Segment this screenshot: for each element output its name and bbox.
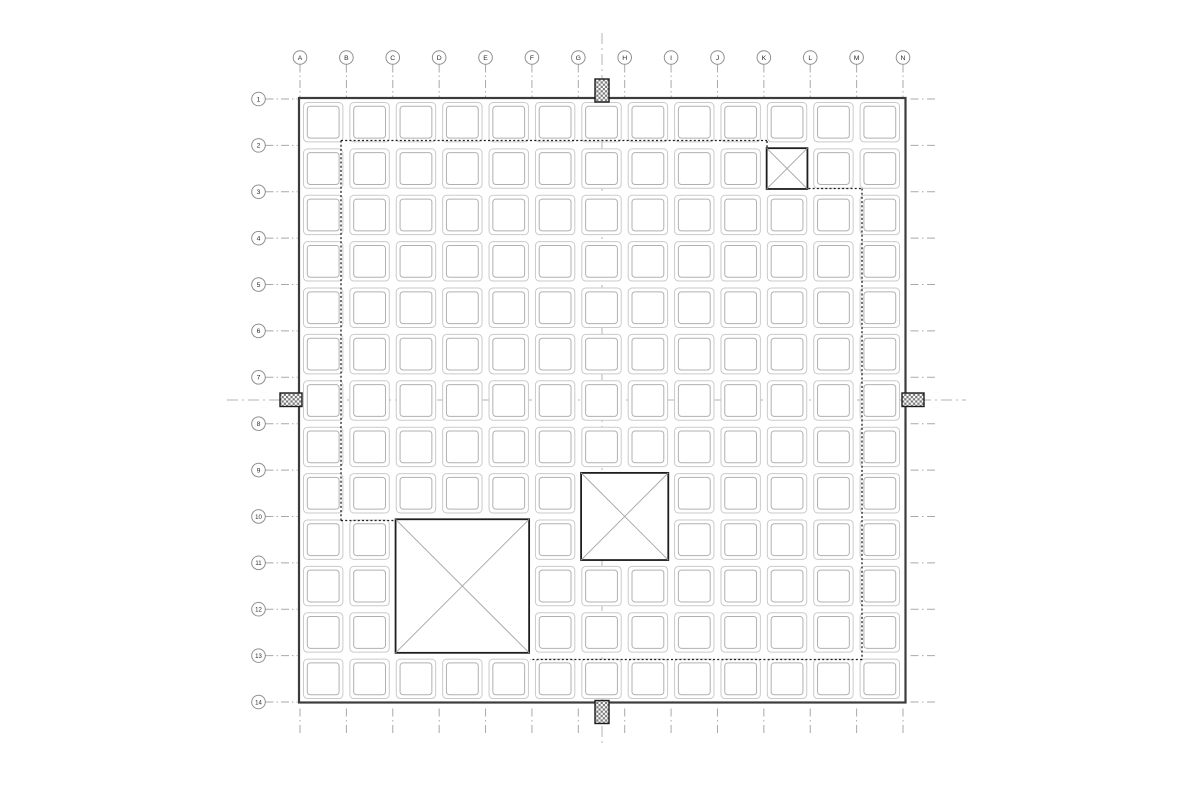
waffle-cell bbox=[860, 474, 899, 513]
waffle-cell bbox=[535, 659, 574, 698]
waffle-cell-outer-border bbox=[489, 334, 528, 373]
waffle-cell bbox=[860, 195, 899, 234]
slab-opening-small bbox=[767, 148, 808, 189]
waffle-cell-outer-border bbox=[767, 288, 806, 327]
waffle-cell bbox=[860, 242, 899, 281]
waffle-cell-outer-border bbox=[396, 288, 435, 327]
section-marker-left bbox=[280, 393, 302, 407]
waffle-cell-outer-border bbox=[396, 659, 435, 698]
grid-bubble-label: D bbox=[437, 55, 442, 62]
grid-bubble-row-14: 14 bbox=[252, 695, 266, 709]
waffle-cell bbox=[396, 195, 435, 234]
waffle-cell-outer-border bbox=[860, 103, 899, 142]
waffle-cell-outer-border bbox=[767, 427, 806, 466]
grid-bubble-label: 4 bbox=[257, 235, 261, 242]
waffle-cell bbox=[628, 381, 667, 420]
waffle-cell-outer-border bbox=[814, 103, 853, 142]
waffle-cell bbox=[814, 427, 853, 466]
waffle-cell-outer-border bbox=[535, 659, 574, 698]
waffle-cell-outer-border bbox=[675, 288, 714, 327]
waffle-cell bbox=[304, 613, 343, 652]
waffle-cell bbox=[582, 334, 621, 373]
grid-bubble-label: I bbox=[670, 55, 672, 62]
grid-bubble-row-4: 4 bbox=[252, 231, 266, 245]
waffle-cell-outer-border bbox=[814, 613, 853, 652]
grid-bubble-label: 5 bbox=[257, 282, 261, 289]
waffle-cell bbox=[767, 474, 806, 513]
waffle-cell-outer-border bbox=[675, 195, 714, 234]
waffle-cell bbox=[304, 195, 343, 234]
waffle-cell-outer-border bbox=[304, 659, 343, 698]
waffle-cell bbox=[860, 381, 899, 420]
waffle-cell bbox=[396, 381, 435, 420]
waffle-cell bbox=[582, 381, 621, 420]
waffle-cell-outer-border bbox=[304, 520, 343, 559]
waffle-cell-outer-border bbox=[675, 520, 714, 559]
waffle-cell bbox=[350, 659, 389, 698]
grid-bubble-row-2: 2 bbox=[252, 139, 266, 153]
waffle-cell bbox=[860, 566, 899, 605]
waffle-cell bbox=[304, 334, 343, 373]
waffle-cell bbox=[350, 334, 389, 373]
section-marker-right bbox=[902, 393, 924, 407]
waffle-cell bbox=[443, 149, 482, 188]
waffle-cell bbox=[814, 103, 853, 142]
waffle-cell-outer-border bbox=[350, 149, 389, 188]
waffle-cell bbox=[443, 103, 482, 142]
waffle-cell-outer-border bbox=[721, 103, 760, 142]
waffle-cell bbox=[489, 427, 528, 466]
waffle-cell-outer-border bbox=[396, 242, 435, 281]
waffle-cell bbox=[628, 427, 667, 466]
waffle-cell bbox=[443, 659, 482, 698]
waffle-cell-outer-border bbox=[396, 381, 435, 420]
waffle-cell bbox=[814, 520, 853, 559]
waffle-cell bbox=[814, 474, 853, 513]
waffle-cell bbox=[350, 288, 389, 327]
waffle-cell bbox=[489, 334, 528, 373]
grid-bubble-label: 9 bbox=[257, 467, 261, 474]
waffle-cell bbox=[814, 242, 853, 281]
waffle-cell-outer-border bbox=[767, 242, 806, 281]
grid-bubble-label: 7 bbox=[257, 375, 261, 382]
waffle-cell bbox=[396, 103, 435, 142]
grid-bubble-label: C bbox=[390, 55, 395, 62]
waffle-cell-outer-border bbox=[721, 334, 760, 373]
waffle-cell bbox=[304, 288, 343, 327]
waffle-cell bbox=[535, 613, 574, 652]
waffle-cell bbox=[628, 242, 667, 281]
waffle-cell-outer-border bbox=[675, 242, 714, 281]
waffle-cell-outer-border bbox=[721, 520, 760, 559]
grid-bubble-column-J: J bbox=[711, 51, 725, 65]
grid-bubble-row-11: 11 bbox=[252, 556, 266, 570]
grid-bubble-label: M bbox=[854, 55, 860, 62]
waffle-cell-outer-border bbox=[396, 427, 435, 466]
waffle-cell bbox=[582, 103, 621, 142]
waffle-cell-outer-border bbox=[814, 520, 853, 559]
waffle-cell-outer-border bbox=[535, 103, 574, 142]
grid-bubble-label: 6 bbox=[257, 328, 261, 335]
waffle-cell bbox=[860, 520, 899, 559]
waffle-cell bbox=[443, 288, 482, 327]
grid-bubble-row-10: 10 bbox=[252, 510, 266, 524]
waffle-cell bbox=[814, 381, 853, 420]
waffle-cell-outer-border bbox=[304, 334, 343, 373]
waffle-cell-outer-border bbox=[628, 195, 667, 234]
waffle-cell bbox=[675, 288, 714, 327]
waffle-cell bbox=[814, 195, 853, 234]
waffle-cell bbox=[304, 566, 343, 605]
waffle-cell-outer-border bbox=[304, 195, 343, 234]
waffle-cell bbox=[721, 334, 760, 373]
grid-bubble-column-G: G bbox=[572, 51, 586, 65]
waffle-cell-outer-border bbox=[535, 334, 574, 373]
waffle-cell-outer-border bbox=[535, 381, 574, 420]
grid-bubble-label: 10 bbox=[255, 515, 262, 521]
grid-bubble-label: 12 bbox=[255, 608, 262, 614]
waffle-cell bbox=[721, 427, 760, 466]
waffle-cell-outer-border bbox=[860, 520, 899, 559]
grid-bubble-label: L bbox=[808, 55, 812, 62]
waffle-cell-outer-border bbox=[350, 427, 389, 466]
waffle-cell bbox=[443, 195, 482, 234]
waffle-cell-outer-border bbox=[582, 659, 621, 698]
waffle-cell-outer-border bbox=[535, 566, 574, 605]
waffle-cell bbox=[350, 613, 389, 652]
grid-bubble-column-F: F bbox=[525, 51, 539, 65]
waffle-cell-outer-border bbox=[489, 242, 528, 281]
waffle-cell bbox=[860, 613, 899, 652]
waffle-cell bbox=[628, 566, 667, 605]
waffle-cell bbox=[582, 613, 621, 652]
waffle-cell-outer-border bbox=[860, 427, 899, 466]
waffle-cell bbox=[350, 103, 389, 142]
grid-bubble-label: B bbox=[344, 55, 349, 62]
waffle-cell bbox=[535, 288, 574, 327]
grid-bubble-label: N bbox=[901, 55, 906, 62]
waffle-cell-outer-border bbox=[396, 103, 435, 142]
waffle-cell bbox=[489, 195, 528, 234]
grid-bubble-label: 14 bbox=[255, 700, 262, 706]
waffle-cell-outer-border bbox=[489, 195, 528, 234]
waffle-cell bbox=[675, 149, 714, 188]
waffle-cell bbox=[489, 659, 528, 698]
grid-bubble-row-7: 7 bbox=[252, 371, 266, 385]
waffle-cell-outer-border bbox=[767, 659, 806, 698]
waffle-cell bbox=[675, 334, 714, 373]
waffle-cell bbox=[675, 103, 714, 142]
waffle-cell-outer-border bbox=[860, 381, 899, 420]
waffle-cell bbox=[443, 242, 482, 281]
waffle-cell-outer-border bbox=[443, 474, 482, 513]
waffle-cell bbox=[535, 474, 574, 513]
waffle-cell bbox=[675, 195, 714, 234]
waffle-cell bbox=[350, 242, 389, 281]
waffle-cell bbox=[535, 195, 574, 234]
waffle-cell-outer-border bbox=[350, 195, 389, 234]
waffle-cell-outer-border bbox=[582, 334, 621, 373]
waffle-cell-outer-border bbox=[304, 242, 343, 281]
waffle-cell-outer-border bbox=[396, 195, 435, 234]
waffle-cell-outer-border bbox=[628, 613, 667, 652]
waffle-cell-outer-border bbox=[860, 195, 899, 234]
waffle-cell-outer-border bbox=[675, 149, 714, 188]
grid-bubble-row-3: 3 bbox=[252, 185, 266, 199]
waffle-cell bbox=[535, 520, 574, 559]
grid-bubble-label: K bbox=[762, 55, 767, 62]
grid-bubble-column-I: I bbox=[664, 51, 678, 65]
waffle-cell-outer-border bbox=[443, 288, 482, 327]
waffle-cell-outer-border bbox=[443, 103, 482, 142]
waffle-cell bbox=[304, 659, 343, 698]
waffle-cell bbox=[767, 613, 806, 652]
waffle-cell-outer-border bbox=[675, 659, 714, 698]
waffle-cell-outer-border bbox=[535, 195, 574, 234]
grid-bubble-row-6: 6 bbox=[252, 324, 266, 338]
waffle-cell-outer-border bbox=[535, 242, 574, 281]
waffle-cell-outer-border bbox=[814, 149, 853, 188]
waffle-cell bbox=[675, 381, 714, 420]
grid-bubble-label: F bbox=[530, 55, 534, 62]
waffle-cell bbox=[721, 613, 760, 652]
waffle-cell-outer-border bbox=[304, 103, 343, 142]
grid-bubble-label: A bbox=[298, 55, 303, 62]
waffle-cell-outer-border bbox=[675, 613, 714, 652]
waffle-cell-outer-border bbox=[443, 242, 482, 281]
waffle-cell bbox=[582, 288, 621, 327]
waffle-cell bbox=[628, 288, 667, 327]
waffle-cell-outer-border bbox=[814, 242, 853, 281]
waffle-cell-outer-border bbox=[721, 242, 760, 281]
waffle-cell bbox=[396, 149, 435, 188]
waffle-cell-outer-border bbox=[489, 474, 528, 513]
waffle-cell-outer-border bbox=[535, 288, 574, 327]
waffle-cell bbox=[675, 659, 714, 698]
waffle-cell bbox=[489, 103, 528, 142]
waffle-cell-outer-border bbox=[350, 381, 389, 420]
waffle-cell-outer-border bbox=[721, 288, 760, 327]
waffle-cell bbox=[767, 659, 806, 698]
waffle-cell-outer-border bbox=[443, 195, 482, 234]
waffle-cell-outer-border bbox=[767, 381, 806, 420]
waffle-cell bbox=[304, 427, 343, 466]
waffle-cell bbox=[675, 427, 714, 466]
waffle-cell bbox=[675, 613, 714, 652]
waffle-cell-outer-border bbox=[535, 613, 574, 652]
waffle-cell-outer-border bbox=[582, 566, 621, 605]
slab-opening-medium bbox=[581, 473, 668, 560]
waffle-cell bbox=[304, 149, 343, 188]
waffle-cell bbox=[489, 242, 528, 281]
waffle-cell-outer-border bbox=[814, 288, 853, 327]
waffle-cell-outer-border bbox=[304, 427, 343, 466]
waffle-cell bbox=[860, 288, 899, 327]
waffle-cell-outer-border bbox=[767, 520, 806, 559]
waffle-cell-outer-border bbox=[814, 195, 853, 234]
waffle-cell bbox=[304, 474, 343, 513]
waffle-cell bbox=[304, 242, 343, 281]
grid-bubble-column-N: N bbox=[896, 51, 910, 65]
waffle-cell-outer-border bbox=[582, 427, 621, 466]
waffle-cell bbox=[767, 566, 806, 605]
waffle-cell-outer-border bbox=[721, 659, 760, 698]
waffle-cell-outer-border bbox=[350, 288, 389, 327]
waffle-cell bbox=[767, 520, 806, 559]
waffle-cell bbox=[535, 566, 574, 605]
waffle-cell bbox=[582, 149, 621, 188]
waffle-cell bbox=[350, 381, 389, 420]
grid-bubble-label: 13 bbox=[255, 654, 262, 660]
waffle-cell-outer-border bbox=[860, 149, 899, 188]
waffle-cell bbox=[489, 381, 528, 420]
waffle-cell bbox=[628, 613, 667, 652]
grid-bubble-label: J bbox=[716, 55, 719, 62]
waffle-cell-outer-border bbox=[535, 149, 574, 188]
waffle-cell bbox=[721, 103, 760, 142]
waffle-cell bbox=[721, 474, 760, 513]
waffle-cell bbox=[628, 659, 667, 698]
waffle-slab-plan: ABCDEFGHIJKLMN1234567891011121314 bbox=[0, 0, 1200, 800]
waffle-cell-outer-border bbox=[860, 334, 899, 373]
drawing-canvas: ABCDEFGHIJKLMN1234567891011121314 bbox=[0, 0, 1200, 800]
grid-bubble-row-12: 12 bbox=[252, 602, 266, 616]
grid-bubble-label: 1 bbox=[257, 96, 261, 103]
waffle-cell-outer-border bbox=[350, 520, 389, 559]
waffle-cell bbox=[675, 474, 714, 513]
grid-bubble-label: 11 bbox=[255, 561, 262, 567]
waffle-cell bbox=[767, 242, 806, 281]
waffle-cell-outer-border bbox=[628, 427, 667, 466]
waffle-cell-outer-border bbox=[675, 103, 714, 142]
waffle-cell bbox=[767, 381, 806, 420]
grid-bubble-row-8: 8 bbox=[252, 417, 266, 431]
waffle-cell bbox=[628, 334, 667, 373]
waffle-cell-outer-border bbox=[767, 103, 806, 142]
waffle-cell-outer-border bbox=[304, 613, 343, 652]
waffle-cell-outer-border bbox=[443, 427, 482, 466]
waffle-cell-outer-border bbox=[489, 427, 528, 466]
waffle-cell-outer-border bbox=[814, 474, 853, 513]
waffle-cell-outer-border bbox=[721, 149, 760, 188]
waffle-cell-outer-border bbox=[304, 566, 343, 605]
waffle-cell-outer-border bbox=[628, 659, 667, 698]
waffle-cell-outer-border bbox=[767, 566, 806, 605]
waffle-cell-outer-border bbox=[304, 474, 343, 513]
waffle-cell bbox=[350, 149, 389, 188]
waffle-cell bbox=[582, 566, 621, 605]
grid-bubble-column-K: K bbox=[757, 51, 771, 65]
waffle-cell bbox=[767, 195, 806, 234]
waffle-cell bbox=[304, 520, 343, 559]
waffle-cell-outer-border bbox=[721, 474, 760, 513]
waffle-cell-outer-border bbox=[721, 613, 760, 652]
waffle-cell-outer-border bbox=[860, 474, 899, 513]
waffle-cell bbox=[721, 659, 760, 698]
waffle-cell-outer-border bbox=[304, 381, 343, 420]
waffle-cell bbox=[582, 659, 621, 698]
grid-bubble-label: 3 bbox=[257, 189, 261, 196]
waffle-cell bbox=[814, 613, 853, 652]
waffle-cell bbox=[860, 149, 899, 188]
waffle-cell bbox=[860, 427, 899, 466]
section-marker-top bbox=[595, 79, 609, 102]
waffle-cell bbox=[814, 566, 853, 605]
waffle-cell bbox=[304, 103, 343, 142]
waffle-cell-outer-border bbox=[628, 566, 667, 605]
waffle-cell-outer-border bbox=[860, 288, 899, 327]
waffle-cell bbox=[814, 659, 853, 698]
waffle-cell bbox=[860, 659, 899, 698]
waffle-cell bbox=[350, 566, 389, 605]
waffle-cell-outer-border bbox=[535, 520, 574, 559]
waffle-cell-outer-border bbox=[814, 381, 853, 420]
waffle-cell-outer-border bbox=[582, 242, 621, 281]
waffle-cell bbox=[675, 520, 714, 559]
waffle-cell-outer-border bbox=[860, 613, 899, 652]
waffle-cell bbox=[489, 149, 528, 188]
waffle-cell-outer-border bbox=[582, 195, 621, 234]
waffle-cell-outer-border bbox=[675, 381, 714, 420]
waffle-cell-outer-border bbox=[350, 566, 389, 605]
waffle-cell-outer-border bbox=[489, 103, 528, 142]
waffle-cell-outer-border bbox=[628, 242, 667, 281]
waffle-cell bbox=[721, 520, 760, 559]
grid-bubble-column-E: E bbox=[479, 51, 493, 65]
waffle-cell-outer-border bbox=[582, 613, 621, 652]
waffle-cell bbox=[535, 149, 574, 188]
waffle-cell bbox=[443, 381, 482, 420]
waffle-cell bbox=[675, 566, 714, 605]
grid-bubble-label: 8 bbox=[257, 421, 261, 428]
waffle-cell-outer-border bbox=[628, 288, 667, 327]
grid-bubble-row-1: 1 bbox=[252, 92, 266, 106]
waffle-cell bbox=[396, 288, 435, 327]
waffle-cell-outer-border bbox=[675, 566, 714, 605]
waffle-cell-outer-border bbox=[304, 149, 343, 188]
waffle-cell bbox=[721, 566, 760, 605]
waffle-cell-outer-border bbox=[396, 474, 435, 513]
waffle-cell bbox=[814, 334, 853, 373]
waffle-cell-outer-border bbox=[582, 288, 621, 327]
waffle-cell-outer-border bbox=[814, 659, 853, 698]
waffle-cell bbox=[535, 381, 574, 420]
waffle-cell bbox=[721, 149, 760, 188]
waffle-cell bbox=[721, 381, 760, 420]
waffle-cell-outer-border bbox=[721, 427, 760, 466]
waffle-cell-outer-border bbox=[350, 659, 389, 698]
grid-bubble-column-M: M bbox=[850, 51, 864, 65]
grid-bubble-column-B: B bbox=[340, 51, 354, 65]
grid-bubble-label: H bbox=[622, 55, 627, 62]
waffle-cell bbox=[675, 242, 714, 281]
waffle-cell-outer-border bbox=[443, 334, 482, 373]
waffle-cell-outer-border bbox=[675, 334, 714, 373]
waffle-cell bbox=[350, 195, 389, 234]
waffle-cell-outer-border bbox=[814, 427, 853, 466]
waffle-cell bbox=[628, 195, 667, 234]
waffle-cell-outer-border bbox=[767, 474, 806, 513]
waffle-cell bbox=[582, 242, 621, 281]
waffle-cell-outer-border bbox=[767, 613, 806, 652]
section-marker-bottom bbox=[595, 701, 609, 724]
waffle-cell bbox=[767, 334, 806, 373]
waffle-cell bbox=[396, 474, 435, 513]
grid-bubble-column-C: C bbox=[386, 51, 400, 65]
waffle-cell bbox=[721, 288, 760, 327]
grid-bubble-row-13: 13 bbox=[252, 649, 266, 663]
waffle-cell bbox=[814, 288, 853, 327]
